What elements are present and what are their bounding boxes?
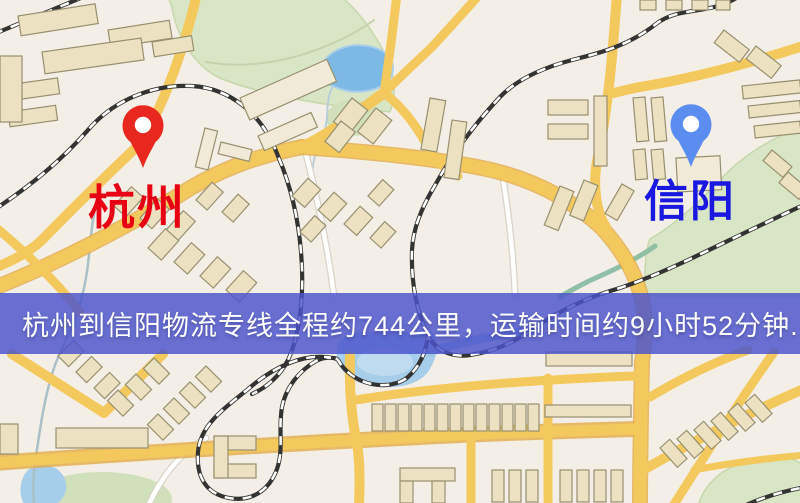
route-info-banner: 杭州到信阳物流专线全程约744公里，运输时间约9小时52分钟.: [0, 293, 800, 354]
route-map-image: 杭州 信阳 杭州到信阳物流专线全程约744公里，运输时间约9小时52分钟.: [0, 0, 800, 503]
destination-city-label: 信阳: [644, 177, 736, 226]
origin-city-label: 杭州: [88, 181, 186, 234]
map-canvas: 杭州 信阳: [0, 0, 800, 503]
origin-pin-hole: [135, 117, 151, 133]
route-info-text: 杭州到信阳物流专线全程约744公里，运输时间约9小时52分钟.: [0, 304, 799, 343]
destination-pin-hole: [683, 116, 699, 132]
